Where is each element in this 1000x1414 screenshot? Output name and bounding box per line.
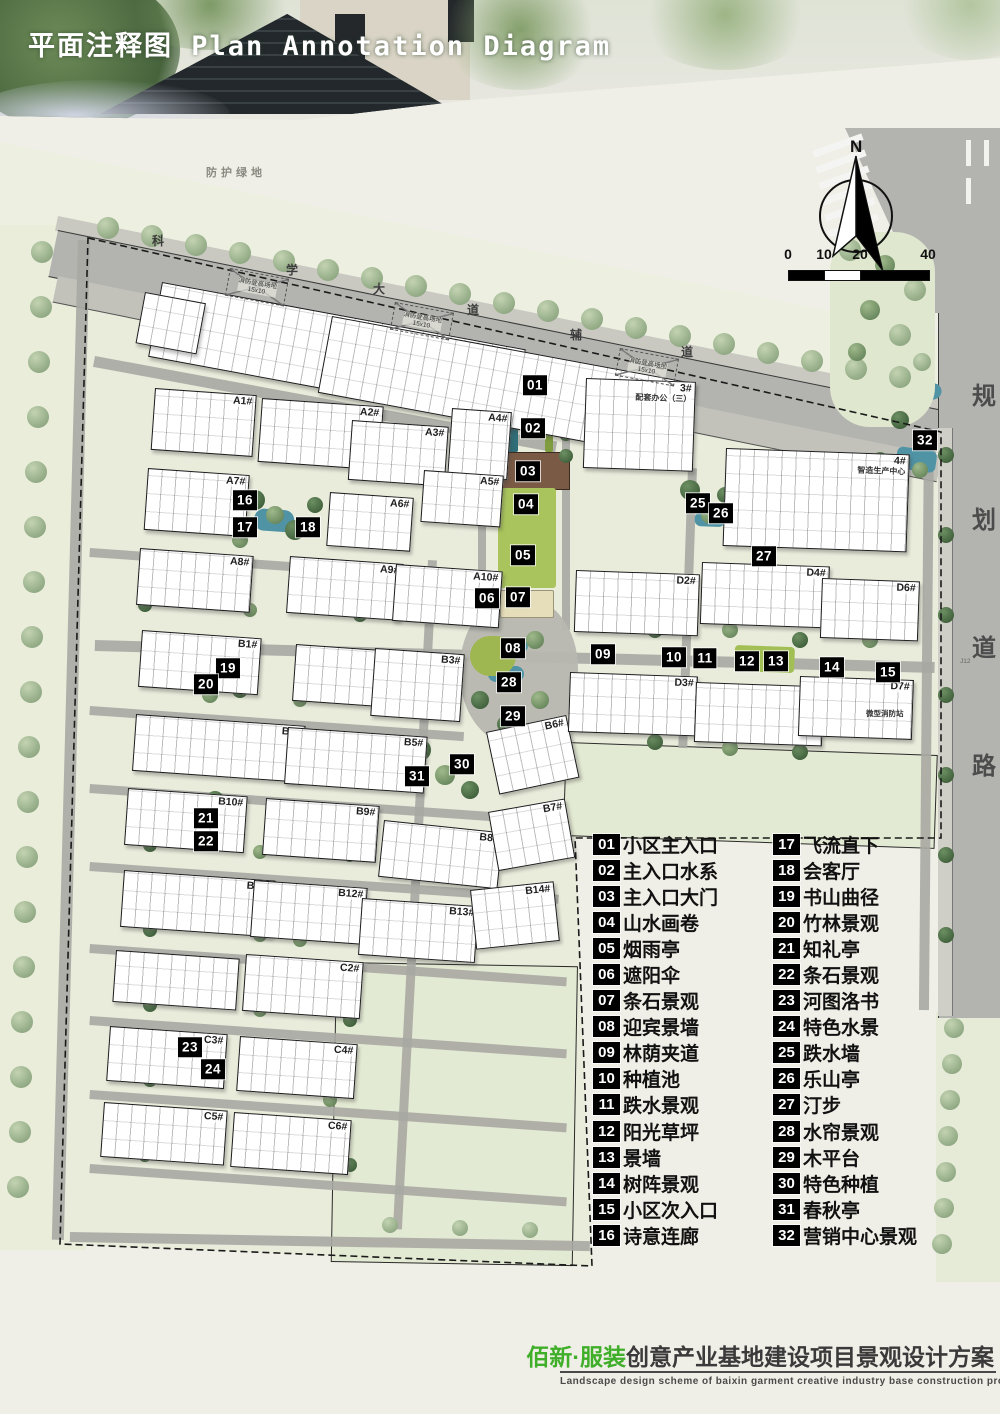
tree: [936, 1162, 956, 1182]
tree: [944, 1018, 964, 1038]
building-label: 3#: [680, 382, 692, 394]
scale-20: 20: [852, 246, 868, 262]
legend-number: 31: [773, 1199, 800, 1220]
building-label: C6#: [328, 1120, 348, 1133]
tree: [940, 1090, 960, 1110]
building-label: A1#: [233, 394, 253, 407]
building-B12: B12#: [250, 880, 368, 945]
building-label: D2#: [676, 575, 696, 588]
building-label: 4#: [894, 455, 906, 467]
tree: [792, 744, 808, 760]
building-label: A4#: [488, 412, 508, 425]
street-name-char: 科: [152, 232, 164, 249]
legend-label: 山水画卷: [623, 909, 699, 936]
legend-label: 竹林景观: [803, 909, 879, 936]
tree: [21, 626, 43, 648]
legend-number: 29: [773, 1147, 800, 1168]
tree: [24, 516, 46, 538]
tree: [581, 308, 603, 330]
legend-item-10: 10种植池: [593, 1066, 718, 1092]
plan-marker-25: 25: [686, 493, 710, 513]
tree: [934, 1198, 954, 1218]
tree: [11, 1011, 33, 1033]
building-label: A8#: [230, 555, 250, 568]
building-A1: A1#: [151, 388, 257, 457]
legend-label: 知礼亭: [803, 935, 860, 962]
blossom-foliage: [0, 80, 230, 150]
legend-item-17: 17飞流直下: [773, 831, 917, 857]
tree: [27, 406, 49, 428]
tree: [942, 1054, 962, 1074]
tree: [932, 1234, 952, 1254]
legend-label: 书山曲径: [803, 883, 879, 910]
tree: [18, 736, 40, 758]
legend-item-32: 32营销中心景观: [773, 1222, 917, 1248]
legend-number: 14: [593, 1173, 620, 1194]
legend-label: 小区次入口: [623, 1196, 718, 1223]
plan-marker-24: 24: [201, 1059, 225, 1079]
building-label: B10#: [218, 795, 244, 809]
tree: [471, 691, 489, 709]
building-label: B6#: [544, 717, 565, 733]
building-unlabeled: [112, 950, 239, 1011]
building-D3: D3#: [568, 672, 698, 736]
tree: [7, 1176, 29, 1198]
tree: [938, 447, 954, 463]
plan-marker-01: 01: [523, 375, 547, 395]
tree: [938, 927, 954, 943]
legend-item-02: 02主入口水系: [593, 857, 718, 883]
tree: [452, 1220, 468, 1236]
plan-marker-12: 12: [735, 651, 759, 671]
legend-label: 汀步: [803, 1091, 841, 1118]
north-label: N: [850, 137, 862, 156]
building-unlabeled: [136, 292, 206, 354]
legend-number: 28: [773, 1121, 800, 1142]
project-subtitle-en: Landscape design scheme of baixin garmen…: [560, 1376, 996, 1387]
legend-item-31: 31春秋亭: [773, 1196, 917, 1222]
building-A9: A9#: [286, 556, 404, 621]
building-3: 3#配套办公（三）: [583, 378, 696, 472]
plan-marker-02: 02: [521, 418, 545, 438]
tree: [938, 847, 954, 863]
legend-item-18: 18会客厅: [773, 857, 917, 883]
legend-label: 阳光草坪: [623, 1118, 699, 1145]
header-photo: [0, 0, 1000, 132]
legend-label: 景墙: [623, 1144, 661, 1171]
legend-number: 06: [593, 964, 620, 985]
legend-item-29: 29木平台: [773, 1144, 917, 1170]
plan-marker-06: 06: [475, 588, 499, 608]
street-name-char: 辅: [570, 326, 582, 343]
legend-number: 05: [593, 938, 620, 959]
tree: [647, 734, 663, 750]
tree: [97, 217, 119, 239]
legend-item-26: 26乐山亭: [773, 1066, 917, 1092]
legend-label: 主入口大门: [623, 883, 718, 910]
tree: [307, 497, 323, 513]
legend-number: 24: [773, 1016, 800, 1037]
tree: [713, 333, 735, 355]
legend-label: 跌水景观: [623, 1091, 699, 1118]
building-label: A5#: [480, 475, 500, 488]
tree: [845, 358, 867, 380]
legend-number: 18: [773, 860, 800, 881]
building-B10: B10#: [124, 788, 248, 853]
scale-10: 10: [816, 246, 832, 262]
legend-number: 02: [593, 860, 620, 881]
project-brand: 佰新·服装: [526, 1344, 626, 1370]
legend-number: 32: [773, 1225, 800, 1246]
plan-marker-21: 21: [194, 808, 218, 828]
building-label: B9#: [356, 805, 376, 818]
tree: [31, 241, 53, 263]
tree-foliage: [640, 0, 810, 70]
legend-item-13: 13景墙: [593, 1144, 718, 1170]
building-label: B1#: [238, 638, 258, 651]
legend-number: 01: [593, 834, 620, 855]
legend-item-27: 27汀步: [773, 1092, 917, 1118]
legend-column-2: 17飞流直下18会客厅19书山曲径20竹林景观21知礼亭22条石景观23河图洛书…: [773, 831, 917, 1249]
plan-marker-26: 26: [709, 503, 733, 523]
building-C5: C5#: [100, 1102, 228, 1166]
plan-marker-15: 15: [876, 662, 900, 682]
tree: [912, 462, 928, 478]
scale-bar: 0 10 20 40: [780, 246, 960, 292]
tree-foliage: [900, 0, 1000, 60]
legend-label: 迎宾景墙: [623, 1013, 699, 1040]
plan-marker-20: 20: [194, 674, 218, 694]
building-C4: C4#: [236, 1036, 358, 1099]
tree: [938, 527, 954, 543]
tree: [938, 1126, 958, 1146]
plan-marker-27: 27: [752, 546, 776, 566]
building-label: D7#: [890, 680, 910, 693]
plan-marker-04: 04: [514, 494, 538, 514]
plan-marker-31: 31: [405, 766, 429, 786]
building-4: 4#智造生产中心: [723, 448, 910, 552]
building-label: A6#: [390, 497, 410, 510]
legend-item-06: 06遮阳伞: [593, 961, 718, 987]
legend-label: 主入口水系: [623, 857, 718, 884]
tree: [30, 296, 52, 318]
tree: [185, 234, 207, 256]
legend-number: 30: [773, 1173, 800, 1194]
legend-item-05: 05烟雨亭: [593, 935, 718, 961]
legend-label: 特色水景: [803, 1013, 879, 1040]
legend-label: 跌水墙: [803, 1039, 860, 1066]
legend-label: 种植池: [623, 1065, 680, 1092]
building-label: B12#: [338, 887, 364, 901]
tree: [266, 506, 284, 524]
building-B13: B13#: [358, 898, 479, 963]
building-D2: D2#: [574, 570, 700, 636]
legend-label: 遮阳伞: [623, 961, 680, 988]
plan-marker-16: 16: [233, 490, 257, 510]
tree: [537, 300, 559, 322]
building-label: A2#: [360, 406, 380, 419]
building-C2: C2#: [242, 954, 364, 1019]
plan-marker-18: 18: [296, 517, 320, 537]
street-name-char: 学: [286, 261, 298, 278]
tree: [559, 449, 573, 463]
tree: [405, 275, 427, 297]
legend-number: 25: [773, 1042, 800, 1063]
legend-label: 乐山亭: [803, 1065, 860, 1092]
tree: [889, 366, 911, 388]
legend-number: 09: [593, 1042, 620, 1063]
building-label: B13#: [449, 905, 475, 919]
street-name-char: 道: [681, 343, 693, 360]
building-sublabel: 配套办公（三）: [635, 393, 691, 404]
building-D6: D6#: [820, 578, 920, 641]
tree: [531, 691, 549, 709]
legend-number: 20: [773, 912, 800, 933]
plan-marker-11: 11: [693, 648, 716, 668]
legend-label: 特色种植: [803, 1170, 879, 1197]
building-label: B7#: [542, 800, 563, 815]
legend-column-1: 01小区主入口02主入口水系03主入口大门04山水画卷05烟雨亭06遮阳伞07条…: [593, 831, 718, 1249]
legend-number: 03: [593, 886, 620, 907]
tree: [9, 1121, 31, 1143]
plan-marker-17: 17: [233, 517, 257, 537]
legend-label: 河图洛书: [803, 987, 879, 1014]
tree: [625, 317, 647, 339]
footer-rule: [560, 1371, 996, 1373]
scale-40: 40: [920, 246, 936, 262]
tree: [20, 681, 42, 703]
legend-item-03: 03主入口大门: [593, 883, 718, 909]
building-label: C3#: [204, 1034, 224, 1047]
building-label: C5#: [204, 1110, 224, 1123]
plan-marker-09: 09: [591, 644, 615, 664]
legend-item-21: 21知礼亭: [773, 935, 917, 961]
legend-number: 27: [773, 1094, 800, 1115]
building-label: C4#: [334, 1044, 354, 1057]
planned-road-label-char: 规: [972, 376, 996, 411]
tree: [10, 1066, 32, 1088]
legend-item-08: 08迎宾景墙: [593, 1014, 718, 1040]
tree: [848, 343, 866, 361]
legend-label: 条石景观: [803, 961, 879, 988]
legend-label: 会客厅: [803, 857, 860, 884]
tree: [382, 1217, 398, 1233]
building-label: B5#: [404, 736, 424, 749]
project-title: 佰新·服装创意产业基地建设项目景观设计方案: [526, 1338, 994, 1372]
plan-marker-30: 30: [450, 754, 474, 774]
legend-number: 22: [773, 964, 800, 985]
plan-marker-32: 32: [913, 430, 937, 450]
lane-marking: [966, 140, 971, 166]
plan-marker-14: 14: [820, 657, 844, 677]
plan-marker-08: 08: [501, 638, 525, 658]
micro-fire-station-label: 微型消防站: [866, 708, 904, 719]
plan-marker-03: 03: [516, 461, 540, 481]
planned-road-label-char: 路: [972, 746, 996, 781]
tree: [891, 411, 909, 429]
legend-item-23: 23河图洛书: [773, 988, 917, 1014]
plan-marker-10: 10: [662, 647, 686, 667]
building-D4: D4#: [700, 562, 830, 628]
legend-label: 木平台: [803, 1144, 860, 1171]
legend-item-07: 07条石景观: [593, 988, 718, 1014]
legend-item-28: 28水帘景观: [773, 1118, 917, 1144]
tree: [16, 846, 38, 868]
building-label: A7#: [226, 474, 246, 487]
legend-item-04: 04山水画卷: [593, 909, 718, 935]
tree: [801, 350, 823, 372]
tree: [889, 324, 911, 346]
building-B9: B9#: [262, 798, 380, 863]
tree: [23, 571, 45, 593]
legend-number: 23: [773, 990, 800, 1011]
tree: [229, 242, 251, 264]
scale-0: 0: [784, 246, 792, 262]
planned-road-label-char: 划: [972, 500, 996, 535]
tree: [792, 632, 808, 648]
building-B3: B3#: [370, 648, 465, 722]
lane-marking: [966, 178, 971, 204]
legend-item-24: 24特色水景: [773, 1014, 917, 1040]
tree: [526, 631, 544, 649]
legend-number: 19: [773, 886, 800, 907]
plan-marker-29: 29: [501, 706, 525, 726]
plan-marker-13: 13: [764, 651, 788, 671]
legend-number: 15: [593, 1199, 620, 1220]
building-A6: A6#: [326, 492, 414, 552]
legend-item-01: 01小区主入口: [593, 831, 718, 857]
building-label: B14#: [525, 883, 551, 898]
building-C3: C3#: [106, 1026, 228, 1089]
building-A4: A4#: [447, 408, 512, 480]
legend-item-15: 15小区次入口: [593, 1196, 718, 1222]
page-title: 平面注释图 Plan Annotation Diagram: [28, 24, 611, 63]
legend-label: 飞流直下: [803, 831, 879, 858]
legend-number: 08: [593, 1016, 620, 1037]
protective-green-label: 防护绿地: [206, 164, 266, 180]
legend-item-11: 11跌水景观: [593, 1092, 718, 1118]
building-label: B3#: [441, 654, 461, 667]
fire-pad-label: 消防登高场地15x10: [401, 311, 442, 332]
street-name-char: 大: [373, 280, 385, 297]
building-B4: B4#: [132, 714, 306, 783]
legend-item-25: 25跌水墙: [773, 1040, 917, 1066]
legend-item-22: 22条石景观: [773, 961, 917, 987]
legend-item-16: 16诗意连廊: [593, 1222, 718, 1248]
legend-number: 10: [593, 1068, 620, 1089]
plan-marker-07: 07: [506, 587, 530, 607]
tree: [913, 353, 931, 371]
legend-number: 21: [773, 938, 800, 959]
building-label: D6#: [896, 582, 916, 595]
tree: [493, 292, 515, 314]
legend-item-20: 20竹林景观: [773, 909, 917, 935]
legend-number: 26: [773, 1068, 800, 1089]
building-C6: C6#: [230, 1112, 352, 1175]
fire-pad-label: 消防登高场地15x10: [626, 357, 667, 378]
legend-label: 条石景观: [623, 987, 699, 1014]
plan-marker-22: 22: [194, 831, 218, 851]
legend-number: 07: [593, 990, 620, 1011]
tree: [938, 767, 954, 783]
legend-label: 烟雨亭: [623, 935, 680, 962]
legend-number: 17: [773, 834, 800, 855]
building-label: A10#: [473, 570, 499, 584]
tree: [13, 956, 35, 978]
tree: [14, 901, 36, 923]
plan-marker-23: 23: [178, 1037, 202, 1057]
plan-marker-28: 28: [497, 672, 521, 692]
legend-label: 小区主入口: [623, 831, 718, 858]
tree: [757, 342, 779, 364]
building-sublabel: 智造生产中心: [857, 466, 905, 477]
legend-item-09: 09林荫夹道: [593, 1040, 718, 1066]
building-label: A3#: [425, 426, 445, 439]
legend-label: 营销中心景观: [803, 1222, 917, 1249]
legend-number: 12: [593, 1121, 620, 1142]
legend-number: 11: [593, 1094, 620, 1115]
tree: [28, 351, 50, 373]
building-A8: A8#: [136, 548, 254, 613]
building-B14: B14#: [470, 881, 560, 949]
plan-marker-05: 05: [511, 545, 535, 565]
project-title-rest: 创意产业基地建设项目景观设计方案: [626, 1344, 994, 1370]
legend-item-19: 19书山曲径: [773, 883, 917, 909]
tree: [317, 259, 339, 281]
tree: [938, 687, 954, 703]
legend-number: 13: [593, 1147, 620, 1168]
plan-annotation-page: 1#配套办公2#配套办公3#配套办公（三）4#智造生产中心A1#A2#A3#A4…: [0, 0, 1000, 1414]
plan-marker-19: 19: [216, 658, 240, 678]
legend-label: 林荫夹道: [623, 1039, 699, 1066]
fire-pad-label: 消防登高场地15x10: [236, 277, 277, 298]
tree: [938, 607, 954, 623]
planned-road-label-char: 道: [972, 628, 996, 663]
legend-item-30: 30特色种植: [773, 1170, 917, 1196]
tree: [461, 781, 479, 799]
tree: [522, 1222, 538, 1238]
legend-label: 水帘景观: [803, 1118, 879, 1145]
tree: [25, 461, 47, 483]
street-name-char: 道: [467, 301, 479, 318]
building-A5: A5#: [420, 470, 503, 527]
legend-label: 春秋亭: [803, 1196, 860, 1223]
road-code-label: J12: [960, 658, 970, 665]
building-label: C2#: [340, 962, 360, 975]
legend-item-14: 14树阵景观: [593, 1170, 718, 1196]
legend-label: 树阵景观: [623, 1170, 699, 1197]
lane-marking: [984, 140, 989, 166]
legend-label: 诗意连廊: [623, 1222, 699, 1249]
tree: [17, 791, 39, 813]
building-label: D3#: [674, 677, 694, 690]
legend-number: 16: [593, 1225, 620, 1246]
legend-number: 04: [593, 912, 620, 933]
legend-item-12: 12阳光草坪: [593, 1118, 718, 1144]
